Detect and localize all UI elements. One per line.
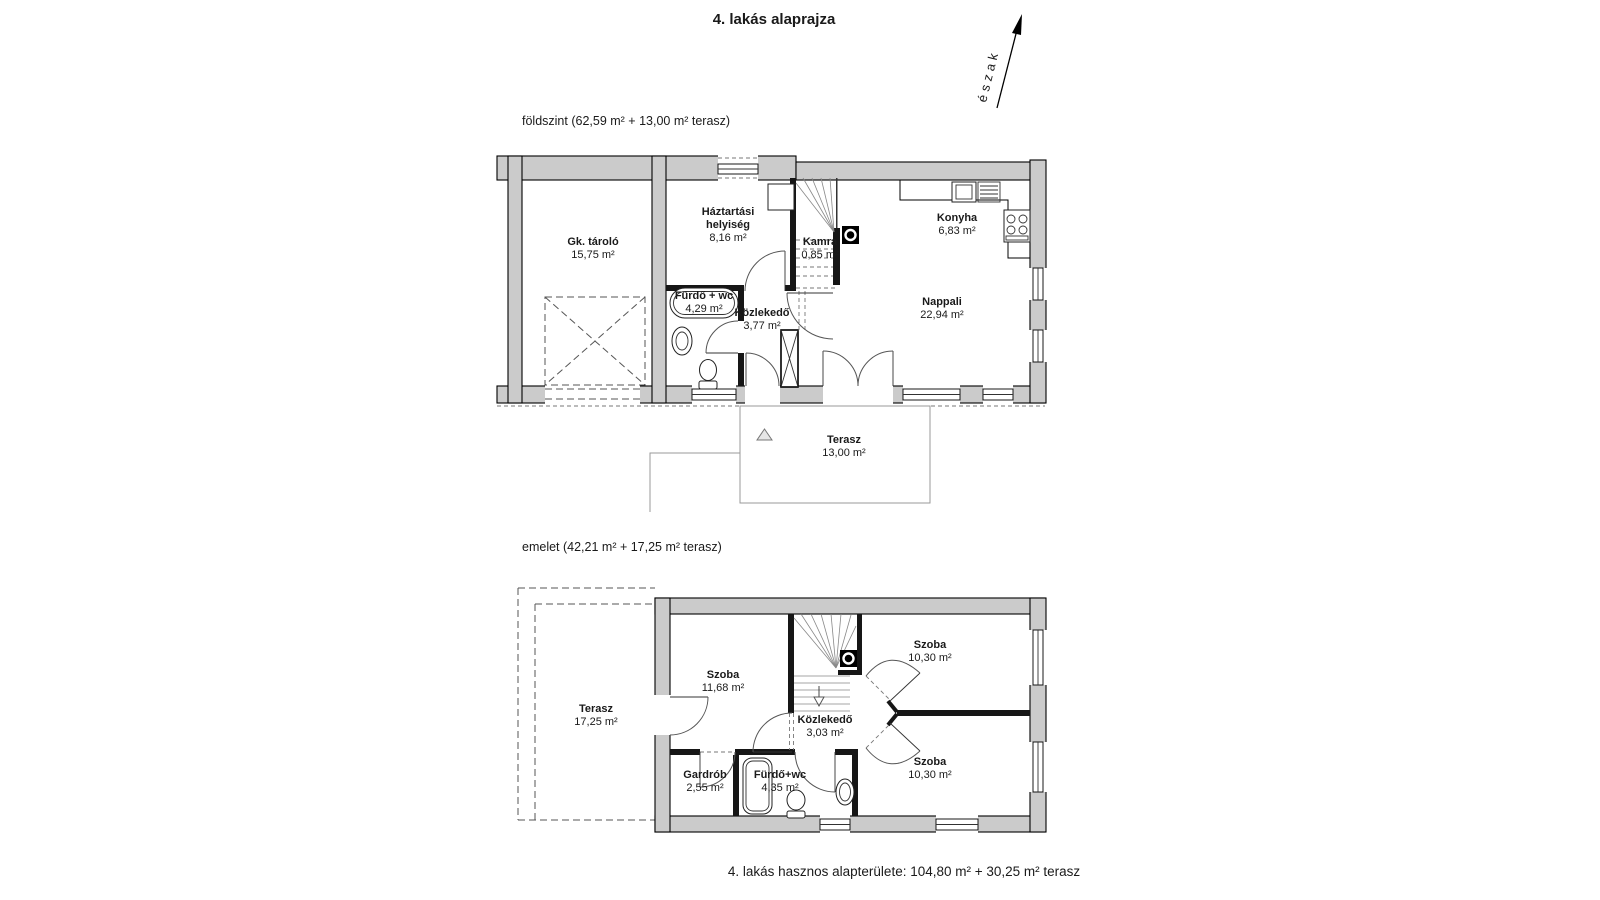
window [903, 385, 960, 404]
window [820, 815, 850, 834]
sink-icon [672, 327, 692, 355]
room-name: Szoba [908, 639, 951, 652]
room-name: Közlekedő [797, 714, 852, 727]
room-name: Háztartási helyiség [684, 206, 772, 232]
masonry-pier [781, 330, 798, 387]
terrace-marker-icon [757, 429, 772, 440]
room-label-szoba-also: Szoba 10,30 m² [908, 756, 951, 782]
terrace-door-opening [654, 695, 671, 735]
upper-floor-heading: emelet (42,21 m² + 17,25 m² terasz) [522, 540, 722, 554]
window [1029, 742, 1047, 792]
french-door-opening [823, 385, 893, 404]
door-arc [746, 353, 779, 386]
room-name: Gardrób [683, 769, 726, 782]
room-name: Fürdő+wc [754, 769, 806, 782]
terrace-door-opening [745, 385, 780, 404]
door-arc [670, 697, 708, 735]
room-label-kamra: Kamra 0,85 m² [801, 236, 838, 262]
door-arc [866, 660, 920, 701]
room-area: 10,30 m² [908, 769, 951, 782]
room-name: Szoba [702, 669, 745, 682]
room-name: Kamra [801, 236, 838, 249]
toilet-icon [699, 360, 717, 390]
floorplan-drawing: észak [0, 0, 1600, 900]
kitchen-sink-icon [952, 182, 1000, 202]
room-area: 11,68 m² [702, 682, 745, 695]
door-arc [753, 713, 792, 752]
room-name: Konyha [937, 212, 977, 225]
room-label-konyha: Konyha 6,83 m² [937, 212, 977, 238]
window [1029, 330, 1047, 362]
room-area: 3,77 m² [734, 320, 789, 333]
door-arc [745, 251, 785, 291]
room-area: 13,00 m² [822, 447, 865, 460]
room-name: Gk. tároló [567, 236, 618, 249]
room-area: 4,35 m² [754, 782, 806, 795]
room-area: 8,16 m² [684, 232, 772, 245]
room-label-gk-tarolo: Gk. tároló 15,75 m² [567, 236, 618, 262]
window [1029, 630, 1047, 685]
room-name: Terasz [822, 434, 865, 447]
north-arrow: észak [974, 14, 1022, 108]
room-area: 17,25 m² [574, 716, 617, 729]
window [983, 385, 1013, 404]
garage-door [545, 385, 640, 404]
room-name: Szoba [908, 756, 951, 769]
room-area: 4,29 m² [675, 303, 733, 316]
french-door-arcs [823, 351, 893, 386]
window [936, 815, 978, 834]
room-label-furdo-em: Fürdő+wc 4,35 m² [754, 769, 806, 795]
ground-floor-heading: földszint (62,59 m² + 13,00 m² terasz) [522, 114, 730, 128]
floorplan-page: észak [0, 0, 1600, 900]
room-label-gardrob: Gardrób 2,55 m² [683, 769, 726, 795]
boiler-icon [840, 650, 857, 667]
room-label-terasz-em: Terasz 17,25 m² [574, 703, 617, 729]
room-label-szoba-nagy: Szoba 11,68 m² [702, 669, 745, 695]
room-label-furdo-fsz: Fürdő + wc 4,29 m² [675, 290, 733, 316]
room-label-terasz-fsz: Terasz 13,00 m² [822, 434, 865, 460]
ground-floor-plan [497, 155, 1047, 512]
room-area: 22,94 m² [920, 309, 963, 322]
room-name: Nappali [920, 296, 963, 309]
boiler-icon [842, 226, 859, 244]
door-arc [706, 321, 738, 353]
room-label-kozlekedo-fsz: Közlekedő 3,77 m² [734, 307, 789, 333]
window [1029, 268, 1047, 300]
room-name: Terasz [574, 703, 617, 716]
room-area: 15,75 m² [567, 249, 618, 262]
total-area-summary: 4. lakás hasznos alapterülete: 104,80 m²… [728, 864, 1080, 879]
room-area: 3,03 m² [797, 727, 852, 740]
parking-space-cross [545, 297, 645, 385]
room-area: 6,83 m² [937, 225, 977, 238]
room-name: Fürdő + wc [675, 290, 733, 303]
page-title: 4. lakás alaprajza [713, 11, 836, 28]
room-label-haztartasi: Háztartási helyiség 8,16 m² [684, 206, 772, 245]
stove-icon [1004, 210, 1030, 242]
entry-door [718, 155, 758, 181]
room-area: 10,30 m² [908, 652, 951, 665]
room-label-kozlekedo-em: Közlekedő 3,03 m² [797, 714, 852, 740]
north-label: észak [974, 48, 1002, 104]
room-area: 2,55 m² [683, 782, 726, 795]
room-area: 0,85 m² [801, 249, 838, 262]
room-name: Közlekedő [734, 307, 789, 320]
room-label-nappali: Nappali 22,94 m² [920, 296, 963, 322]
room-label-szoba-felso: Szoba 10,30 m² [908, 639, 951, 665]
sink-icon [836, 779, 854, 805]
